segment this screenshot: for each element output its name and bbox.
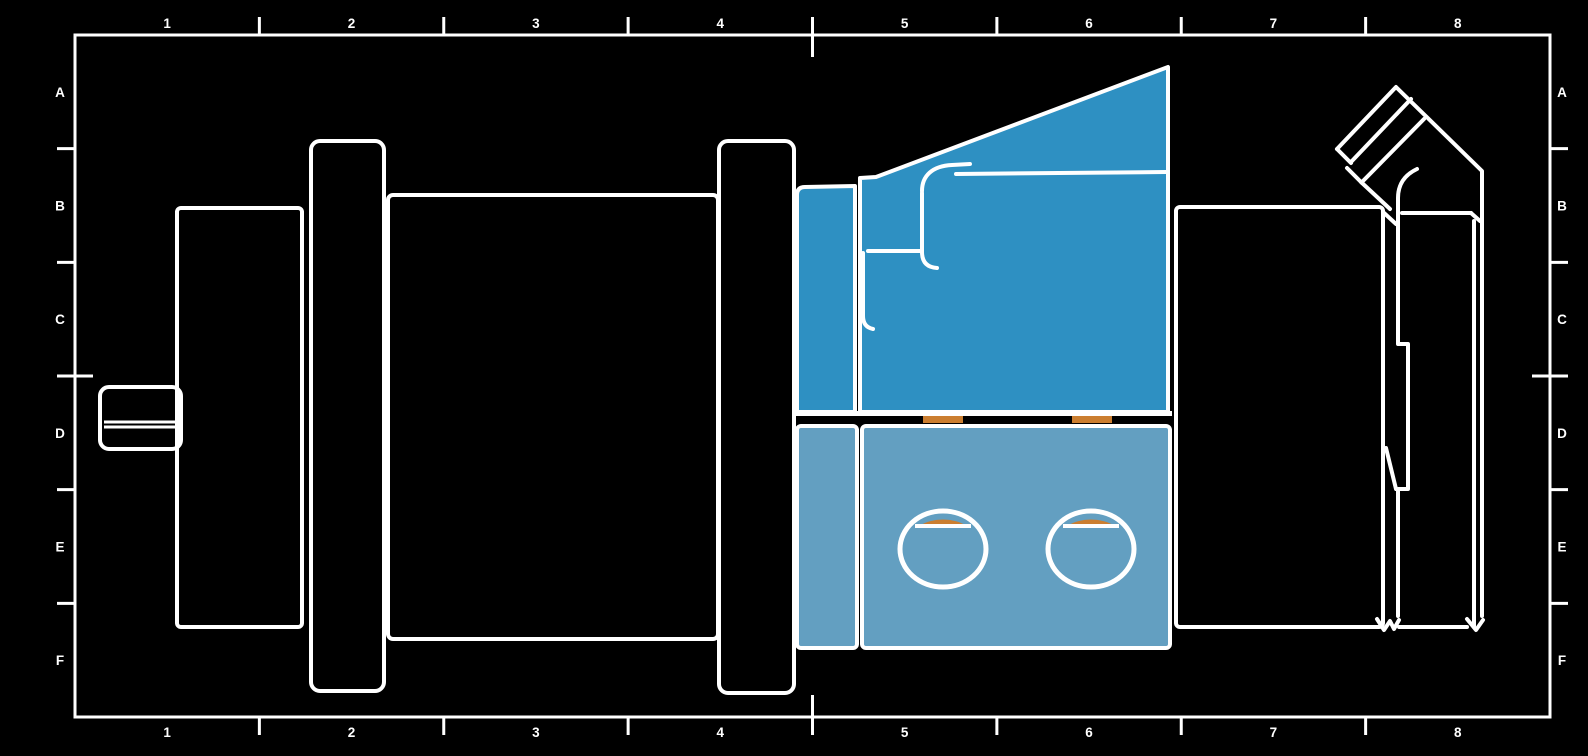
grid-col-label-bottom-8: 8 bbox=[1454, 725, 1462, 740]
gasket-seals bbox=[923, 416, 1112, 423]
pump-assembly-drawing bbox=[100, 67, 1483, 693]
grid-col-label-top-2: 2 bbox=[348, 16, 356, 31]
grid-col-label-top-3: 3 bbox=[532, 16, 540, 31]
grid-col-label-bottom-7: 7 bbox=[1270, 725, 1278, 740]
valve-manifold-block bbox=[797, 426, 1170, 648]
grid-row-label-right-D: D bbox=[1557, 426, 1567, 441]
grid-col-label-top-8: 8 bbox=[1454, 16, 1462, 31]
grid-row-label-right-C: C bbox=[1557, 312, 1567, 327]
valve-coil-left-section bbox=[797, 186, 855, 412]
grid-col-label-top-5: 5 bbox=[901, 16, 909, 31]
grid-row-label-left-E: E bbox=[55, 540, 64, 555]
grid-row-label-right-E: E bbox=[1557, 540, 1566, 555]
grid-col-label-bottom-2: 2 bbox=[348, 725, 356, 740]
manifold-left-section bbox=[797, 426, 857, 648]
grid-col-label-top-7: 7 bbox=[1270, 16, 1278, 31]
grid-col-label-top-6: 6 bbox=[1085, 16, 1093, 31]
valve-gasket-bar bbox=[795, 411, 1172, 416]
grid-row-label-right-B: B bbox=[1557, 199, 1567, 214]
fitting-neck-edge bbox=[1361, 182, 1390, 209]
cad-viewer-page: { "sheet": { "background": "#000000", "l… bbox=[0, 0, 1588, 756]
grid-row-label-left-C: C bbox=[55, 312, 65, 327]
seal-strip bbox=[923, 416, 963, 423]
technical-drawing-canvas: 1122334455667788AABBCCDDEEFF bbox=[0, 0, 1588, 756]
manifold-main-section bbox=[862, 426, 1170, 648]
rear-housing bbox=[1176, 207, 1383, 627]
fitting-nut-band bbox=[1351, 99, 1411, 162]
seal-strip bbox=[1072, 416, 1112, 423]
grid-row-label-left-B: B bbox=[55, 199, 65, 214]
grid-row-label-left-A: A bbox=[55, 85, 65, 100]
front-end-bell bbox=[177, 208, 302, 627]
solenoid-valve-housing bbox=[797, 67, 1168, 412]
grid-col-label-top-4: 4 bbox=[717, 16, 725, 31]
stator-housing bbox=[388, 195, 718, 639]
grid-col-label-bottom-4: 4 bbox=[717, 725, 725, 740]
grid-col-label-bottom-1: 1 bbox=[163, 725, 171, 740]
rear-mounting-flange bbox=[719, 141, 794, 693]
grid-col-label-bottom-3: 3 bbox=[532, 725, 540, 740]
grid-col-label-bottom-5: 5 bbox=[901, 725, 909, 740]
drive-shaft bbox=[100, 387, 181, 449]
fitting-nut-band bbox=[1362, 119, 1424, 182]
fitting-nut-facet bbox=[1337, 149, 1351, 163]
end-cap bbox=[1377, 169, 1483, 630]
grid-col-label-bottom-6: 6 bbox=[1085, 725, 1093, 740]
grid-row-label-right-A: A bbox=[1557, 85, 1567, 100]
valve-fold-line bbox=[956, 172, 1166, 174]
valve-coil-wedge-body bbox=[860, 67, 1168, 412]
grid-col-label-top-1: 1 bbox=[163, 16, 171, 31]
grid-row-label-left-F: F bbox=[56, 653, 64, 668]
grid-row-label-right-F: F bbox=[1558, 653, 1566, 668]
front-mounting-flange bbox=[311, 141, 384, 691]
grid-row-label-left-D: D bbox=[55, 426, 65, 441]
